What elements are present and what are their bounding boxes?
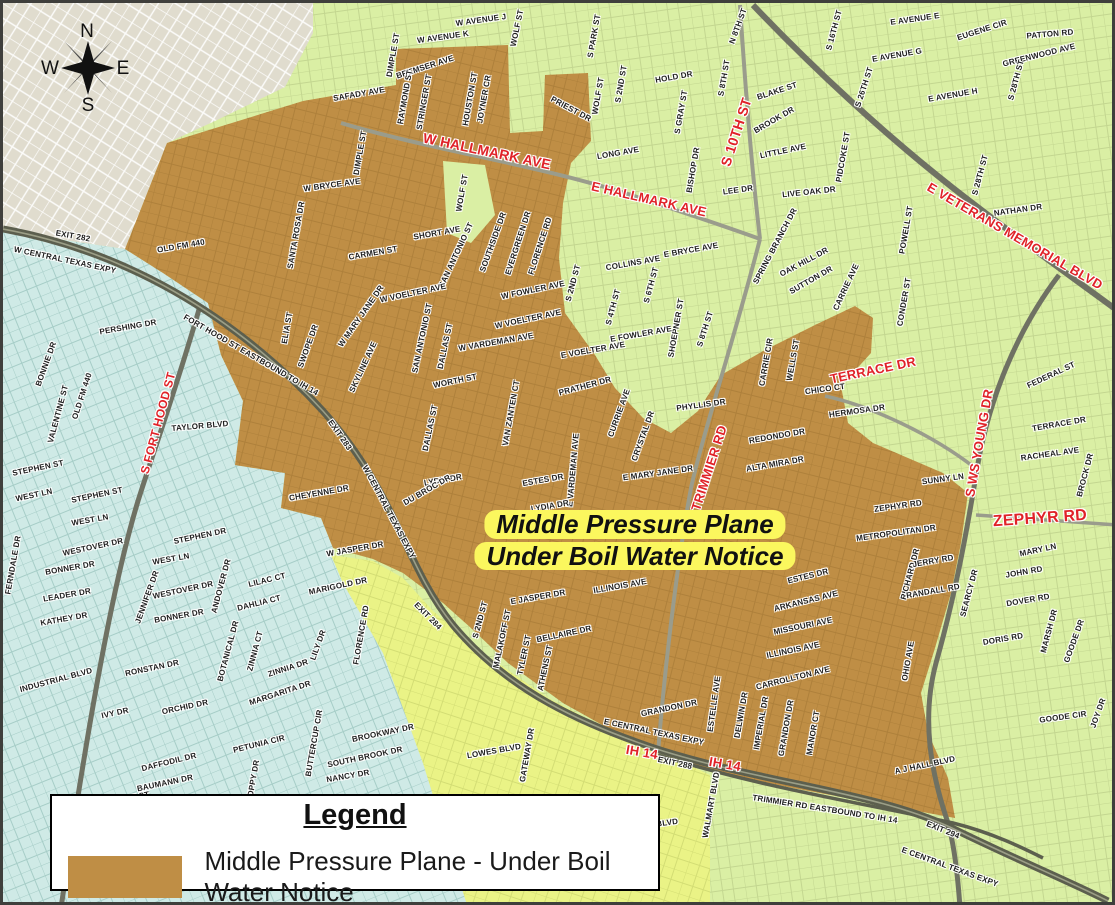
compass-n: N [80, 21, 94, 42]
legend-item-label: Middle Pressure Plane - Under Boil Water… [204, 846, 658, 905]
legend-swatch [68, 856, 182, 898]
compass-w: W [41, 58, 59, 79]
legend: Legend Middle Pressure Plane - Under Boi… [50, 794, 660, 891]
compass-e: E [117, 58, 130, 79]
compass-s: S [82, 95, 95, 116]
legend-item: Middle Pressure Plane - Under Boil Water… [68, 846, 658, 905]
map-canvas: N W E S [3, 3, 1115, 905]
boil-water-notice-map: N W E S W AVENUE JW AVENUE KWOLF STDIMPL… [0, 0, 1115, 905]
legend-title: Legend [52, 799, 658, 832]
